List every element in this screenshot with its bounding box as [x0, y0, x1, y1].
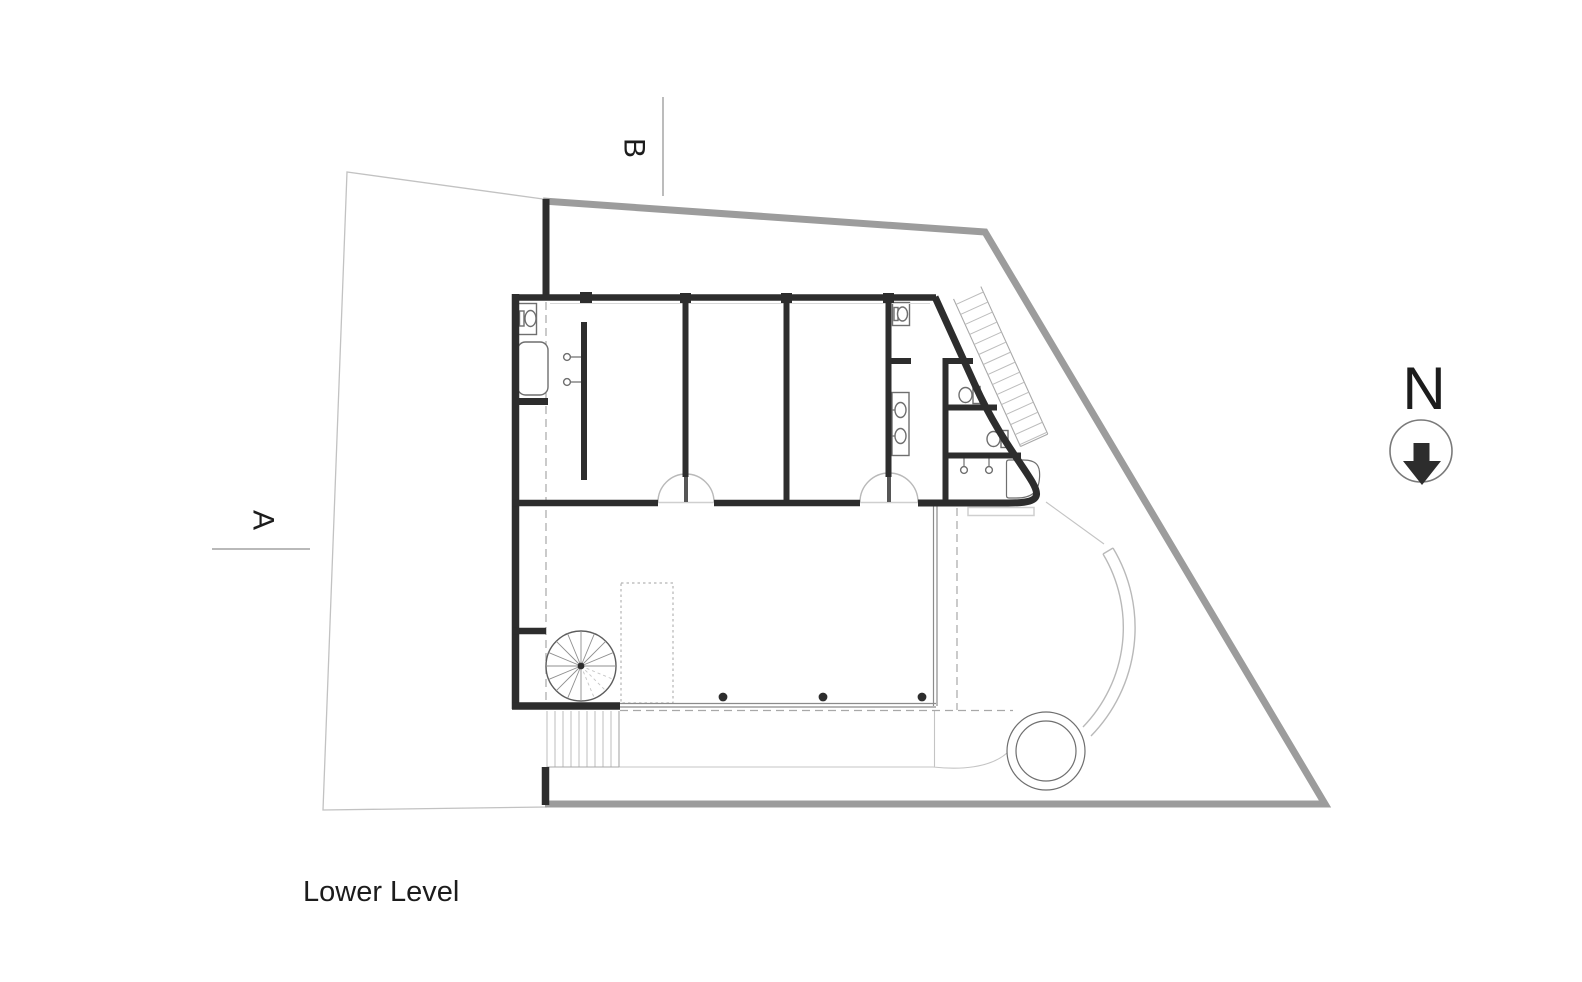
section-marker-b: B	[618, 97, 664, 196]
wall-hooks	[564, 354, 583, 386]
column	[819, 693, 828, 702]
column	[918, 693, 927, 702]
path-to-ramp-line	[1046, 502, 1104, 544]
floor-plan-page: B A N Lower Level	[0, 0, 1582, 982]
column	[719, 693, 728, 702]
bathtub-symbol	[518, 342, 549, 395]
section-label-b: B	[618, 138, 651, 158]
south-glass-wall	[620, 704, 936, 708]
hot-tub	[1007, 712, 1085, 790]
projection-right-line	[620, 508, 1013, 711]
floor-plan-drawing: B A N Lower Level	[0, 0, 1582, 982]
toilet-symbol	[518, 304, 537, 335]
north-arrow: N	[1390, 355, 1452, 485]
dotted-outline	[621, 583, 673, 703]
section-marker-a: A	[212, 510, 310, 549]
spiral-staircase	[546, 631, 616, 701]
wall-nub	[781, 293, 792, 303]
garden-path	[619, 502, 1135, 768]
toilet-symbol	[893, 303, 910, 326]
site-boundary	[323, 172, 1325, 810]
wall-nub	[680, 293, 691, 303]
east-glass-wall	[934, 506, 938, 706]
glazing	[620, 506, 937, 707]
wall-nub	[580, 292, 592, 303]
structural-columns	[719, 693, 927, 702]
wall-nub	[883, 293, 894, 303]
hot-tub-outer	[1007, 712, 1085, 790]
double-sink-vanity	[889, 393, 909, 456]
curved-ramp	[1083, 548, 1135, 736]
door-threshold	[968, 508, 1034, 516]
section-label-a: A	[247, 510, 280, 530]
north-label: N	[1402, 355, 1445, 422]
building-walls	[512, 199, 1037, 805]
plan-title: Lower Level	[303, 876, 459, 908]
shower-heads	[961, 459, 993, 474]
terrace-edge-line	[619, 710, 1007, 768]
hot-tub-inner	[1016, 721, 1076, 781]
exterior-stairs-south	[547, 711, 619, 767]
